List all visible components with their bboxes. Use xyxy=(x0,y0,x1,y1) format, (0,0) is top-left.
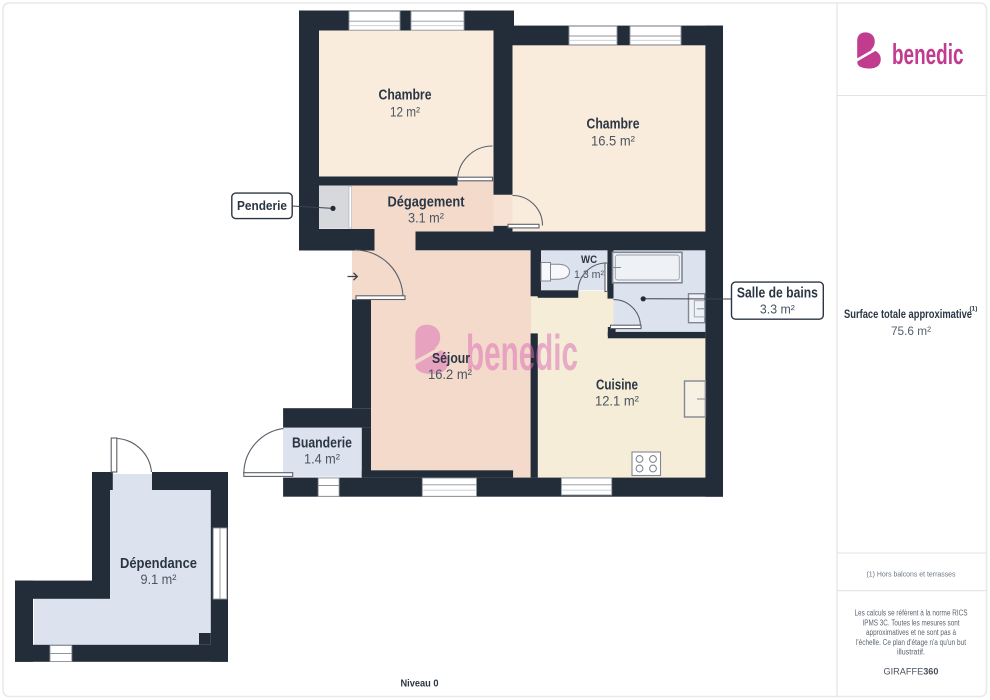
svg-text:benedic: benedic xyxy=(466,325,578,381)
svg-text:(1) Hors balcons et terrasses: (1) Hors balcons et terrasses xyxy=(867,570,956,579)
svg-text:Surface totale approximative: Surface totale approximative xyxy=(844,309,972,321)
svg-text:l'échelle. Ce plan d'étage n'a: l'échelle. Ce plan d'étage n'a qu'un but xyxy=(856,638,967,647)
svg-text:approximatives et ne sont pas: approximatives et ne sont pas à xyxy=(866,628,957,637)
svg-text:1.3 m²: 1.3 m² xyxy=(574,269,604,281)
svg-text:1.4 m²: 1.4 m² xyxy=(304,452,340,467)
svg-text:illustratif.: illustratif. xyxy=(897,648,925,657)
svg-text:3.1 m²: 3.1 m² xyxy=(408,211,444,226)
svg-text:Cuisine: Cuisine xyxy=(596,378,638,394)
svg-text:12 m²: 12 m² xyxy=(390,105,420,120)
svg-text:Penderie: Penderie xyxy=(237,198,287,213)
svg-text:Buanderie: Buanderie xyxy=(292,436,352,452)
svg-text:12.1 m²: 12.1 m² xyxy=(595,394,639,409)
svg-text:GIRAFFE360: GIRAFFE360 xyxy=(884,667,939,678)
svg-text:3.3 m²: 3.3 m² xyxy=(760,302,796,317)
svg-text:75.6 m²: 75.6 m² xyxy=(891,324,931,338)
svg-text:Niveau 0: Niveau 0 xyxy=(401,679,439,690)
svg-text:Dépendance: Dépendance xyxy=(120,556,197,572)
svg-text:(1): (1) xyxy=(970,306,978,313)
svg-text:Chambre: Chambre xyxy=(379,88,432,104)
svg-text:Séjour: Séjour xyxy=(432,351,470,367)
svg-text:Chambre: Chambre xyxy=(587,117,640,133)
svg-text:WC: WC xyxy=(581,254,597,266)
svg-text:Dégagement: Dégagement xyxy=(388,195,465,211)
svg-text:IPMS 3C. Toutes les mesures so: IPMS 3C. Toutes les mesures sont xyxy=(863,618,961,627)
svg-text:Salle de bains: Salle de bains xyxy=(737,286,818,302)
svg-text:Les calculs se réfèrent à la n: Les calculs se réfèrent à la norme RICS xyxy=(855,609,968,618)
svg-text:9.1 m²: 9.1 m² xyxy=(141,572,177,587)
svg-text:benedic: benedic xyxy=(892,39,964,71)
svg-text:16.5 m²: 16.5 m² xyxy=(591,134,635,149)
svg-text:16.2 m²: 16.2 m² xyxy=(428,367,472,382)
